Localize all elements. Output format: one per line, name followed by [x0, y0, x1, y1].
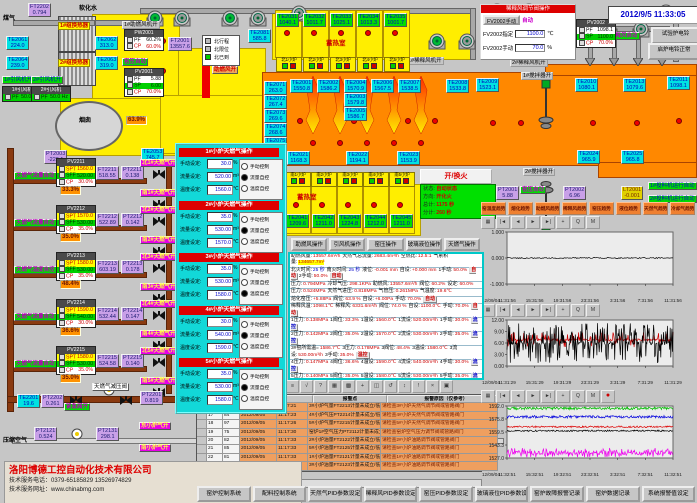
- set-input[interactable]: 1590.0: [207, 343, 233, 353]
- controller-row: PF50.0 Hz: [32, 94, 70, 101]
- radio-温度自控[interactable]: 温度自控: [241, 236, 281, 247]
- te2081-tag: TE2081585.8: [248, 29, 271, 43]
- fv-manual-label: FV2002手动: [483, 44, 513, 52]
- trend-button-熔化趋势[interactable]: 熔化趋势: [508, 202, 533, 215]
- valve-open-label: 南2#天燃气开: [140, 236, 178, 244]
- furnace-gas-section: 4#小炉天燃气操作手动设定:30.0%流量设定:540.00m³/h温度设定:1…: [179, 306, 279, 356]
- heat-exchanger: [58, 52, 96, 86]
- op-button-引风机操作[interactable]: 引风机操作: [329, 238, 365, 251]
- set-label: 手动设定:: [180, 213, 201, 220]
- chart-plot: 12.009.006.003.000.0012/09/0411:31:2915:…: [481, 316, 695, 386]
- svg-text:23:31:29: 23:31:29: [581, 380, 599, 385]
- set-label: 流量设定:: [180, 278, 201, 285]
- valve-open-label: 南3#天燃气开: [140, 283, 178, 291]
- text-label: 63.9%: [126, 116, 147, 125]
- svg-text:11:31:56: 11:31:56: [498, 298, 516, 303]
- svg-text:19:32:51: 19:32:51: [553, 472, 571, 477]
- alarm-header-cell: 报警点: [313, 395, 387, 403]
- furnace-gas-section-title: 2#小炉天燃气操作: [179, 201, 279, 210]
- text-label: 助燃风开: [212, 66, 238, 74]
- te2045-tag: TE20451211.0: [390, 214, 413, 228]
- alarm-cell: 4#小炉气压PT2214计量未成立/低: [308, 412, 381, 420]
- port-north-5[interactable]: 北5小炉: [384, 57, 410, 72]
- alarm-cell: 18: [207, 420, 223, 428]
- svg-text:11:31:29: 11:31:29: [498, 380, 516, 385]
- valve-position-value: 35.0%: [60, 233, 81, 242]
- control-mode-radios: 手动控制流量自控温度自控: [239, 264, 283, 305]
- text-label: 窑压自动: [520, 186, 546, 194]
- pt2213-tag: PT22130.178: [121, 260, 144, 274]
- trend-chart-3: ▦|◄◄►►|+QM●1592.01575.81559.51543.31527.…: [481, 390, 695, 483]
- svg-text:1559.5: 1559.5: [489, 430, 505, 436]
- data-row: 4压力:0.147MPa4阀位:36.6%4温设:1590.0℃4流设:540.…: [290, 360, 482, 374]
- text-label: 烟囱: [78, 118, 92, 125]
- set-input[interactable]: 1580.0: [207, 395, 233, 405]
- set-input[interactable]: 35.0: [207, 369, 233, 379]
- valve-position-value: 33.3%: [60, 186, 81, 195]
- fv-manual-input[interactable]: 70.0: [515, 44, 545, 52]
- alarm-cell: 5#小炉油量FT2125计量未成立/低: [308, 445, 381, 453]
- pv2214-controller: PV2214SPT1590.0SFF540.00CP30.0%: [56, 299, 96, 328]
- gas-branch-pipe: [166, 354, 172, 394]
- 2#引风机-controller: 2#引风机PF50.0 Hz: [31, 86, 71, 102]
- alarm-cell: 82: [223, 437, 240, 445]
- fv2002-manual-button[interactable]: FV2002手动: [483, 15, 520, 25]
- te2044-tag: TE20441212.0: [364, 214, 387, 228]
- set-input[interactable]: 30.0: [207, 317, 233, 327]
- port-south-5[interactable]: 南5小炉: [389, 172, 415, 187]
- radio-温度自控[interactable]: 温度自控: [241, 183, 281, 194]
- op-button-天燃气操作[interactable]: 天燃气操作: [444, 238, 480, 251]
- dilution-fan-valve-panel: 稀释风调节阀操作 FV2002手动 自动 FV2002指定 1100.0 ℃ F…: [480, 4, 576, 60]
- burner-nozzle-icon: [633, 58, 643, 66]
- radio-温度自控[interactable]: 温度自控: [241, 393, 281, 404]
- melting-furnace-body: [545, 64, 697, 76]
- pw2001-controller: PW2001PF60.2%CP60.0%: [124, 29, 164, 51]
- alarm-toolbar-icon[interactable]: ↺: [384, 380, 397, 393]
- set-input[interactable]: 35.0: [207, 212, 233, 222]
- fv-manual-unit: %: [547, 45, 552, 51]
- set-input[interactable]: 530.00: [207, 225, 233, 235]
- text-label: 东小炉气开: [139, 422, 171, 430]
- alarm-cell: 85: [223, 445, 240, 453]
- alarm-row[interactable]: 19752012/09/0511:17:30窑炉1#空气压力PT2112计量未成…: [197, 429, 481, 437]
- alarm-toolbar-icon[interactable]: +: [356, 380, 369, 393]
- set-input[interactable]: 30.0: [207, 159, 233, 169]
- pt2001-tag: PT20015.88: [496, 186, 519, 200]
- gas-mode-label: 天燃气流量自动: [14, 313, 57, 321]
- set-label: 手动设定:: [180, 160, 201, 167]
- te2013-tag: TE20131079.6: [623, 78, 646, 92]
- svg-text:23:32:51: 23:32:51: [581, 472, 599, 477]
- svg-text:6.00: 6.00: [494, 341, 504, 347]
- test-bell-button[interactable]: 试验炉电铃: [651, 27, 697, 44]
- pv2001-controller: PV2001PF5.88SP6.00CP70.0%: [124, 68, 164, 97]
- svg-text:11:31:29: 11:31:29: [664, 380, 682, 385]
- set-unit: ℃: [233, 239, 239, 245]
- alarm-cell: 11:17:33: [277, 437, 308, 445]
- alarm-cell: 97: [223, 420, 240, 428]
- te2042-tag: TE20421211.0: [312, 214, 335, 228]
- set-unit: %: [233, 318, 237, 324]
- te2022-tag: TE20221194.1: [346, 151, 369, 165]
- svg-text:12.00: 12.00: [491, 318, 504, 324]
- te2021-tag: TE20211168.3: [287, 151, 310, 165]
- sensor-dot: [338, 30, 344, 36]
- chart-toolbar: ▦|◄◄►►|+QM: [481, 216, 695, 227]
- process-data-panel: 助燃风量:13557.6m³/h天然气总流量:2683.4m³/h空燃比:12.…: [288, 252, 484, 380]
- text-label: 1#助燃风机开: [122, 21, 160, 29]
- text-label: 软化水: [78, 6, 98, 13]
- svg-text:1.000: 1.000: [491, 230, 504, 236]
- port-south-2[interactable]: 南2小炉: [311, 172, 337, 187]
- sensor-dot: [345, 202, 351, 208]
- te2072-tag: TE2072267.4: [264, 95, 287, 109]
- controller-row: CP35.0%: [57, 226, 95, 233]
- fire-status-line: 方向: 开化火: [423, 193, 493, 201]
- svg-text:19:31:29: 19:31:29: [553, 380, 571, 385]
- sensor-dot: [319, 202, 325, 208]
- sensor-dot: [518, 120, 524, 126]
- chimney: [55, 101, 123, 151]
- fire-status-line: 状态: 自动状态: [423, 185, 493, 193]
- controller-row: CP35.0%: [57, 367, 95, 374]
- furnace-gas-section-title: 5#小炉天燃气操作: [179, 358, 279, 367]
- svg-text:7:31:29: 7:31:29: [638, 380, 654, 385]
- port-north-2[interactable]: 北2小炉: [303, 57, 329, 72]
- set-input[interactable]: 1580.0: [207, 290, 233, 300]
- alarm-toolbar-icon[interactable]: ≡: [286, 380, 299, 393]
- sensor-dot: [490, 120, 496, 126]
- alarm-row[interactable]: 18972012/09/0511:17:265#小炉气量FT2215计量未成立/…: [197, 420, 481, 428]
- data-row: 助燃风量:13557.6m³/h天然气总流量:2683.4m³/h空燃比:12.…: [290, 254, 482, 268]
- te2032-tag: TE20321011.7: [303, 13, 326, 27]
- valve-icon: [120, 396, 132, 405]
- alarm-toolbar-icon[interactable]: ↕: [398, 380, 411, 393]
- pt2214-tag: PT22140.147: [121, 307, 144, 321]
- pt2202-tag: PT22020.261: [41, 394, 64, 408]
- alarm-toolbar: ≡√?▦▩+◫↺↕!×▣: [286, 380, 453, 393]
- text-label: 1#引风机开: [2, 76, 34, 84]
- pt2215-tag: PT22150.140: [121, 354, 144, 368]
- set-label: 流量设定:: [180, 173, 201, 180]
- data-row: 3#窑所需温=1586.7℃3压力:0.178MPa3阀位:48.4%3温设:1…: [290, 346, 482, 360]
- svg-text:23:31:56: 23:31:56: [581, 298, 599, 303]
- svg-text:15:31:56: 15:31:56: [526, 298, 544, 303]
- alarm-toolbar-icon[interactable]: ▦: [328, 380, 341, 393]
- radio-流量自控[interactable]: 流量自控: [241, 330, 281, 341]
- alarm-toolbar-icon[interactable]: ×: [426, 380, 439, 393]
- sensor-dot: [432, 118, 438, 124]
- operation-button-row: 助燃风操作引风机操作窑压操作玻璃液位操作天燃气操作: [291, 238, 480, 251]
- svg-text:15:31:29: 15:31:29: [526, 380, 544, 385]
- nav-button-玻璃液位PID参数设定[interactable]: 玻璃液位PID参数设定: [475, 486, 529, 502]
- limit-item: 北限位: [204, 45, 238, 53]
- port-south-3[interactable]: 南3小炉: [337, 172, 363, 187]
- alarm-toolbar-icon[interactable]: ▩: [342, 380, 355, 393]
- controller-row: CP30.0%: [57, 320, 95, 327]
- set-label: 手动设定:: [180, 370, 201, 377]
- nav-button-窑炉故障报警记录[interactable]: 窑炉故障报警记录: [530, 486, 584, 502]
- te2071-tag: TE2071263.0: [264, 81, 287, 95]
- data-row: 1压力:0.138MPa1阀位:33.3%1温设:1560.0℃1流设:520.…: [290, 318, 482, 332]
- set-input[interactable]: 1560.0: [207, 185, 233, 195]
- pv2212-controller: PV2212SPT1570.0SFF530.00CP35.0%: [56, 205, 96, 234]
- alarm-cell: 3#小炉油量FT2123计量未成立/低: [308, 462, 381, 470]
- nav-button-系统报警值设定[interactable]: 系统报警值设定: [642, 486, 696, 502]
- fan-icon: [428, 33, 446, 51]
- gas-branch-pipe: [166, 307, 172, 347]
- ft2212-tag: FT2212522.89: [96, 213, 119, 227]
- set-unit: ℃: [233, 396, 239, 402]
- datetime-display: 2012/9/5 11:33:05: [608, 6, 697, 24]
- trend-button-窑温度趋势[interactable]: 窑温度趋势: [481, 202, 506, 215]
- alarm-cell: 11:17:30: [277, 429, 308, 437]
- valve-open-label: 北4#天燃气开: [140, 300, 178, 308]
- ft2211-tag: FT2211518.55: [96, 166, 119, 180]
- ft2001-tag: FT200113557.6: [168, 37, 192, 51]
- alarm-cell: 11:17:33: [277, 445, 308, 453]
- nav-button-稀释风PID参数设定[interactable]: 稀释风PID参数设定: [364, 486, 418, 502]
- radio-流量自控[interactable]: 流量自控: [241, 382, 281, 393]
- sensor-dot: [364, 140, 370, 146]
- set-input[interactable]: 530.00: [207, 382, 233, 392]
- sensor-dot: [365, 30, 371, 36]
- alarm-cell: 75: [223, 429, 240, 437]
- furnace-gas-section: 1#小炉天燃气操作手动设定:30.0%流量设定:520.00m³/h温度设定:1…: [179, 148, 279, 198]
- valve-open-label: 南1#天燃气开: [140, 189, 178, 197]
- port-north-4[interactable]: 北4小炉: [357, 57, 383, 72]
- fv-setpoint-label: FV2002指定: [483, 30, 513, 38]
- set-label: 手动设定:: [180, 265, 201, 272]
- port-south-4[interactable]: 南4小炉: [363, 172, 389, 187]
- bottom-button-row: 窑炉控制系统配料控制系统天然气PID参数设定稀释风PID参数设定窑压PID参数设…: [197, 486, 695, 502]
- burner-nozzle-icon: [609, 58, 619, 66]
- alarm-cell: 1#小炉油量FT2121计量未成立/低: [308, 454, 381, 462]
- set-unit: ℃: [233, 344, 239, 350]
- sensor-dot: [397, 202, 403, 208]
- radio-手动控制[interactable]: 手动控制: [241, 214, 281, 225]
- alarm-cell: 21: [207, 445, 223, 453]
- alarm-toolbar-icon[interactable]: !: [412, 380, 425, 393]
- svg-text:1543.3: 1543.3: [489, 443, 505, 449]
- sensor-dot: [371, 202, 377, 208]
- trend-chart-2: ▦|◄◄►►|+QM12.009.006.003.000.0012/09/041…: [481, 304, 695, 391]
- svg-text:19:31:56: 19:31:56: [553, 298, 571, 303]
- pt2201-tag: PT22010.819: [140, 391, 163, 405]
- radio-流量自控[interactable]: 流量自控: [241, 225, 281, 236]
- trend-chart-1: ▦|◄◄►►|+QM1.0000.000-1.00012/09/0411:31:…: [481, 216, 695, 309]
- alarm-cell: [197, 437, 207, 445]
- gas-branch-pipe: [166, 166, 172, 206]
- te2010-tag: TE20101080.1: [575, 78, 598, 92]
- radio-流量自控[interactable]: 流量自控: [241, 277, 281, 288]
- sensor-dot: [392, 30, 398, 36]
- port-north-1[interactable]: 北1小炉: [276, 57, 302, 72]
- set-label: 温度设定:: [180, 186, 201, 193]
- set-input[interactable]: 530.00: [207, 277, 233, 287]
- trend-button-助燃风趋势[interactable]: 助燃风趋势: [535, 202, 560, 215]
- alarm-cell: 5#小炉气量FT2215计量未成立/低: [308, 420, 381, 428]
- sensor-dot: [391, 140, 397, 146]
- te2009-tag: TE20091523.1: [476, 78, 499, 92]
- radio-温度自控[interactable]: 温度自控: [241, 288, 281, 299]
- port-south-1[interactable]: 南1小炉: [285, 172, 311, 187]
- chart-toolbar: ▦|◄◄►►|+QM●: [481, 390, 695, 401]
- burner-nozzle-icon: [585, 58, 595, 66]
- alarm-row[interactable]: 21852012/09/0511:17:335#小炉油量FT2125计量未成立/…: [197, 445, 481, 453]
- te2023-tag: TE20231153.9: [397, 151, 420, 165]
- data-row: 5压力:0.140MPa5阀位:35.0%5温设:1580.0℃5流设:530.…: [290, 374, 482, 380]
- valve-position-value: 36.6%: [60, 327, 81, 336]
- svg-text:7:31:56: 7:31:56: [638, 298, 654, 303]
- text-label: 煤气: [2, 16, 16, 23]
- svg-text:-1.000: -1.000: [490, 282, 504, 288]
- valve-icon: [153, 358, 165, 367]
- te2007-tag: TE20071538.5: [398, 79, 421, 93]
- fan-icon: [458, 33, 476, 51]
- alarm-toolbar-icon[interactable]: √: [300, 380, 313, 393]
- trend-button-冷却气趋势[interactable]: 冷却气趋势: [670, 202, 695, 215]
- reversal-limit-box: 北行程北限位北已到: [202, 35, 240, 66]
- set-unit: %: [233, 160, 237, 166]
- radio-手动控制[interactable]: 手动控制: [241, 319, 281, 330]
- controller-row: CP60.0%: [125, 44, 163, 51]
- ft2215-tag: FT2215524.58: [96, 354, 119, 368]
- radio-温度自控[interactable]: 温度自控: [241, 341, 281, 352]
- nav-button-窑炉控制系统[interactable]: 窑炉控制系统: [197, 486, 251, 502]
- te2064-tag: TE2064239.0: [6, 56, 29, 70]
- set-unit: ℃: [233, 186, 239, 192]
- alarm-cell: 2012/09/05: [240, 420, 277, 428]
- te2041-tag: TE20411209.6: [286, 214, 309, 228]
- fv-setpoint-input[interactable]: 1100.0: [515, 30, 545, 38]
- alarm-cell: 2012/09/05: [240, 445, 277, 453]
- furnace-gas-section-title: 1#小炉天燃气操作: [179, 148, 279, 157]
- set-label: 温度设定:: [180, 344, 201, 351]
- fire-change-button[interactable]: 开/换火: [420, 169, 492, 184]
- furnace-gas-section: 5#小炉天燃气操作手动设定:35.0%流量设定:530.00m³/h温度设定:1…: [179, 358, 279, 408]
- op-button-助燃风操作[interactable]: 助燃风操作: [291, 238, 327, 251]
- set-label: 流量设定:: [180, 226, 201, 233]
- trend-button-稀释风趋势[interactable]: 稀释风趋势: [562, 202, 587, 215]
- fv-mode-label: 自动: [522, 16, 533, 24]
- gas-mode-label: 天燃气流量自动: [14, 360, 57, 368]
- alarm-row[interactable]: 20822012/09/0511:17:332#小炉油量FT2122计量未成立/…: [197, 437, 481, 445]
- fan-icon: [249, 10, 267, 28]
- alarm-toolbar-icon[interactable]: ▣: [440, 380, 453, 393]
- nav-button-窑炉数据记录[interactable]: 窑炉数据记录: [586, 486, 640, 502]
- text-label: 蓄热室: [325, 40, 347, 47]
- text-label: 1#稀释风机开: [406, 57, 444, 65]
- alarm-cell: 2012/09/05: [240, 429, 277, 437]
- sensor-dot: [405, 118, 411, 124]
- pt2131-tag: PT2131298.1: [96, 427, 119, 441]
- nav-button-配料控制系统[interactable]: 配料控制系统: [253, 486, 307, 502]
- te2008-tag: TE20081533.8: [446, 79, 469, 93]
- gauge-icon: [71, 428, 83, 440]
- alarm-toolbar-icon[interactable]: ◫: [370, 380, 383, 393]
- set-input[interactable]: 1570.0: [207, 238, 233, 248]
- control-mode-radios: 手动控制流量自控温度自控: [239, 159, 283, 200]
- valve-open-label: 北1#天燃气开: [140, 159, 178, 167]
- gas-mode-label: 天燃气流量自动: [14, 172, 57, 180]
- op-button-玻璃液位操作[interactable]: 玻璃液位操作: [406, 238, 442, 251]
- pt2002-tag: PT20026.96: [563, 186, 586, 200]
- valve-icon: [153, 264, 165, 273]
- valve-position-value: 35.0%: [60, 374, 81, 383]
- furnace-gas-section-title: 3#小炉天燃气操作: [179, 253, 279, 262]
- controller-row: CP35.0%: [57, 273, 95, 280]
- sensor-dot: [297, 118, 303, 124]
- alarm-cell: 窑炉1#空气压力PT2112计量未成立/低: [308, 429, 381, 437]
- svg-text:15:32:51: 15:32:51: [526, 472, 544, 477]
- te2061-tag: TE2061224.0: [6, 36, 29, 50]
- te2004-tag: TE20041570.9: [344, 79, 367, 93]
- control-mode-radios: 手动控制流量自控温度自控: [239, 317, 283, 358]
- te2063-tag: TE2063319.0: [95, 56, 118, 70]
- data-row: 北火时间:25 秒南火时间:25 秒液位:-0.001 mm自设:+0.000 …: [290, 268, 482, 282]
- svg-text:1592.0: 1592.0: [489, 404, 505, 410]
- valve-open-label: 北5#天燃气开: [140, 347, 178, 355]
- pt2211-tag: PT22110.138: [121, 166, 144, 180]
- svg-text:1527.0: 1527.0: [489, 456, 505, 462]
- limit-item: 北已到: [204, 53, 238, 61]
- text-label: 2#引风机开: [31, 76, 63, 84]
- set-input[interactable]: 540.00: [207, 330, 233, 340]
- valve-position-value: 48.4%: [60, 280, 81, 289]
- trend-button-窑压趋势[interactable]: 窑压趋势: [589, 202, 614, 215]
- op-button-窑压操作[interactable]: 窑压操作: [367, 238, 403, 251]
- svg-text:0.000: 0.000: [491, 256, 504, 262]
- panel-title: 稀释风调节阀操作: [481, 5, 575, 13]
- text-label: 天燃气减压阀: [92, 383, 129, 391]
- trend-button-液位趋势[interactable]: 液位趋势: [616, 202, 641, 215]
- nav-button-窑压PID参数设定[interactable]: 窑压PID参数设定: [419, 486, 473, 502]
- valve-open-label: 南4#天燃气开: [140, 330, 178, 338]
- set-label: 流量设定:: [180, 383, 201, 390]
- company-phone: 技术服务电话：0379-65185829 13526974829: [9, 477, 297, 486]
- radio-流量自控[interactable]: 流量自控: [241, 172, 281, 183]
- gas-mode-label: 天燃气流量自动: [14, 219, 57, 227]
- radio-手动控制[interactable]: 手动控制: [241, 266, 281, 277]
- set-label: 温度设定:: [180, 239, 201, 246]
- alarm-cell: 3#小炉气量FT2213计量未成立/低: [308, 403, 381, 411]
- set-input[interactable]: 520.00: [207, 172, 233, 182]
- svg-text:7:32:51: 7:32:51: [638, 472, 654, 477]
- set-input[interactable]: 35.0: [207, 264, 233, 274]
- bell-normal-button[interactable]: 启炉电铃正常: [648, 43, 697, 60]
- te2034-tag: TE20341013.3: [357, 13, 380, 27]
- port-north-3[interactable]: 北3小炉: [330, 57, 356, 72]
- ft2214-tag: FT2214532.44: [96, 307, 119, 321]
- te2002-tag: TE20021586.2: [317, 79, 340, 93]
- trend-button-天然气趋势[interactable]: 天然气趋势: [643, 202, 668, 215]
- valve-open-label: 北3#天燃气开: [140, 253, 178, 261]
- radio-手动控制[interactable]: 手动控制: [241, 161, 281, 172]
- sensor-dot: [310, 140, 316, 146]
- set-unit: %: [233, 265, 237, 271]
- te2001-tag: TE20011550.8: [290, 79, 313, 93]
- te2006-tag: TE20061567.5: [371, 79, 394, 93]
- nav-button-天然气PID参数设定[interactable]: 天然气PID参数设定: [308, 486, 362, 502]
- radio-手动控制[interactable]: 手动控制: [241, 371, 281, 382]
- chart-toolbar: ▦|◄◄►►|+QM: [481, 304, 695, 315]
- ft2213-tag: FT2213603.19: [96, 260, 119, 274]
- alarm-toolbar-icon[interactable]: ?: [314, 380, 327, 393]
- pt2121-tag: PT21210.524: [34, 427, 57, 441]
- gas-mode-label: 天燃气温度自控: [14, 266, 57, 274]
